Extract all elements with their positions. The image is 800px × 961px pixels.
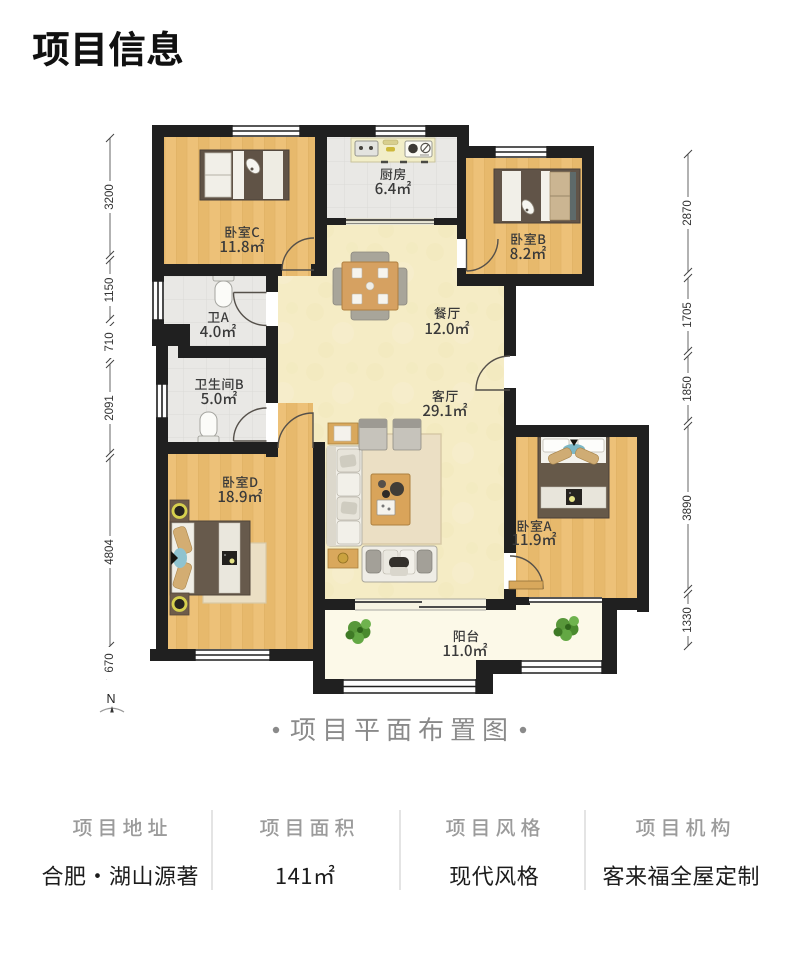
svg-text:2091: 2091	[104, 395, 116, 421]
svg-text:1850: 1850	[682, 376, 694, 402]
svg-text:2870: 2870	[682, 200, 694, 226]
svg-text:4804: 4804	[104, 539, 116, 565]
svg-text:1330: 1330	[682, 607, 694, 633]
svg-text:1705: 1705	[682, 302, 694, 328]
svg-text:N: N	[106, 692, 115, 706]
svg-text:1150: 1150	[104, 278, 116, 303]
svg-text:3200: 3200	[104, 184, 116, 210]
svg-text:3890: 3890	[682, 495, 694, 521]
svg-text:710: 710	[104, 332, 116, 351]
svg-text:670: 670	[104, 653, 116, 672]
